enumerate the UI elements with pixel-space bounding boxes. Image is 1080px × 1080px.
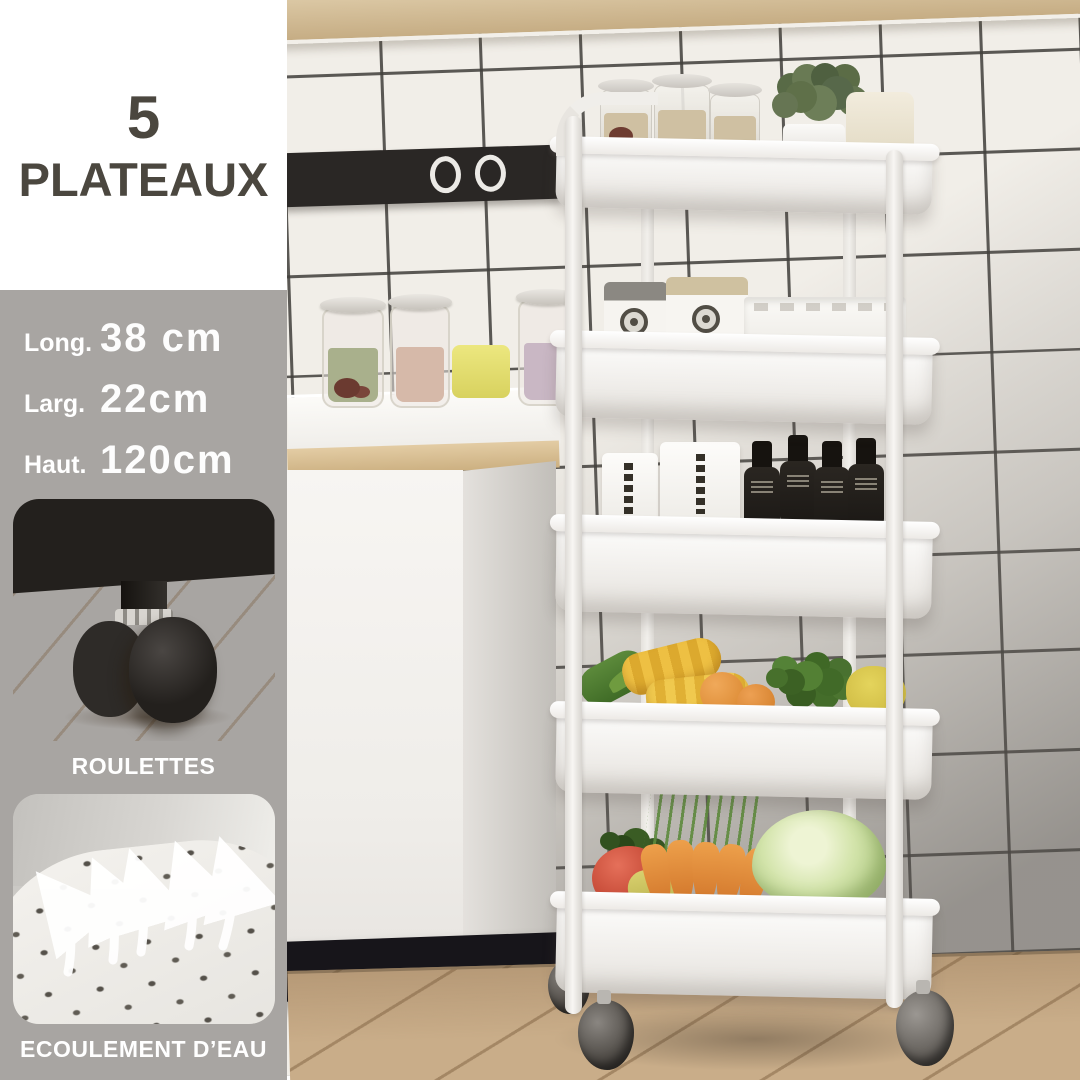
yellow-container (452, 345, 510, 398)
hood-ring-icon (474, 154, 506, 192)
wall-shadow-gradient (287, 0, 1080, 980)
kitchen-scene-photo (0, 0, 1080, 1080)
sauce-bottle (780, 435, 816, 525)
badge-emblem-icon (692, 305, 720, 333)
ceramic-canister (660, 442, 740, 528)
canister-box (604, 282, 668, 344)
caster-wheel (578, 1000, 634, 1070)
leafy-greens (600, 832, 620, 850)
orange-fruit (700, 672, 744, 714)
jar-contents (396, 347, 444, 402)
carrot (639, 842, 677, 910)
spec-value: 22cm (100, 377, 210, 422)
wheels-callout: ROULETTES (0, 753, 287, 780)
sauce-bottle (744, 441, 780, 531)
range-hood-strip (278, 145, 561, 208)
glass-jar (654, 85, 710, 152)
spec-label: Haut. (24, 451, 100, 480)
cart-basket-2 (555, 335, 933, 425)
wall-shelf (251, 0, 1080, 45)
canister-label (696, 454, 705, 514)
spec-row-width: Larg. 22cm (0, 377, 287, 434)
storage-jar (390, 305, 450, 408)
caster-wheel (896, 990, 954, 1066)
cart-handle (556, 92, 658, 156)
cart-basket-4 (555, 706, 933, 800)
white-tray (744, 297, 906, 345)
cabinet-kick-base (281, 932, 562, 1002)
jar-lid (388, 294, 452, 310)
cart-basket-3 (555, 519, 933, 619)
cream-canister (846, 92, 914, 154)
counter-wood-edge (287, 440, 560, 476)
spec-value: 38 cm (100, 316, 223, 361)
caster-rear-wheel (73, 621, 147, 717)
tier-count-label: PLATEAUX (19, 156, 269, 203)
sauce-bottle (814, 441, 850, 531)
sauce-bottle (848, 438, 884, 528)
plant-pot (783, 124, 845, 154)
cart-basket-5 (555, 896, 933, 1000)
orange-fruit (737, 684, 775, 720)
tile-wall (231, 0, 1080, 1076)
yellow-pepper (846, 666, 906, 718)
corn-cob (644, 671, 752, 722)
canister-box (666, 277, 748, 344)
storage-jar (518, 300, 578, 406)
cart-rear-left-pole (641, 158, 654, 928)
cabbage (752, 810, 886, 910)
hood-ring-icon (429, 156, 461, 194)
caster-front-wheel (129, 617, 217, 723)
carrot (666, 839, 697, 905)
perforated-tray (13, 829, 275, 1024)
carrot (691, 842, 720, 907)
caster-mount-ring (115, 609, 173, 625)
spec-value: 120cm (100, 438, 235, 483)
cabinet-side (463, 461, 556, 957)
carrot-stems (642, 772, 766, 858)
jar-contents (524, 343, 572, 400)
cabinet-front (287, 470, 463, 960)
drainage-photo (13, 794, 275, 1024)
badge-emblem-icon (620, 308, 648, 336)
parsley-bunch (766, 668, 788, 688)
tier-count: 5 (127, 88, 160, 148)
caster-wheel-photo (13, 499, 275, 741)
counter-top (287, 386, 561, 452)
ceramic-canister (602, 453, 658, 527)
tomato (592, 846, 666, 910)
squash (625, 863, 691, 913)
cart-rear-right-pole (843, 158, 856, 928)
carrot (733, 846, 775, 915)
corn-cob (618, 634, 725, 699)
product-infographic: 5 PLATEAUX Long. 38 cm Larg. 22cm Haut. … (0, 0, 1080, 1080)
spec-label: Larg. (24, 390, 100, 419)
badge-5-plateaux: 5 PLATEAUX (0, 0, 287, 290)
storage-jar (322, 308, 384, 408)
wood-floor (287, 950, 1080, 1080)
herb-plant (772, 92, 798, 118)
jar-berries (609, 127, 633, 145)
caster-stem (121, 581, 167, 615)
cart-basket-1 (555, 141, 932, 215)
up-arrow-icons (13, 794, 275, 1024)
cart-floor-shadow (545, 1006, 965, 1072)
glass-jar (710, 94, 760, 152)
inset-wheel-shadow (63, 704, 233, 730)
corn-husk (605, 654, 658, 694)
jar-contents (328, 348, 378, 402)
spec-row-height: Haut. 120cm (0, 438, 287, 495)
jar-lid (516, 289, 580, 305)
canister-label (624, 463, 633, 515)
spec-row-length: Long. 38 cm (0, 316, 287, 373)
cart-front-left-pole (565, 116, 582, 1014)
carrot (712, 842, 748, 909)
inset-wood-floor (13, 499, 275, 741)
glass-jar (600, 90, 652, 152)
spec-label: Long. (24, 329, 100, 358)
inset-background (13, 794, 275, 886)
jar-lid (320, 297, 386, 313)
caster-wheel (548, 960, 590, 1014)
jar-berries (334, 378, 360, 398)
specs-panel: Long. 38 cm Larg. 22cm Haut. 120cm ROULE… (0, 290, 287, 1080)
cart-front-right-pole (886, 150, 903, 1008)
info-panel: 5 PLATEAUX Long. 38 cm Larg. 22cm Haut. … (0, 0, 287, 1080)
zucchini (573, 643, 655, 712)
inset-cart-base (13, 499, 275, 741)
drainage-callout: ECOULEMENT D’EAU (0, 1036, 287, 1063)
